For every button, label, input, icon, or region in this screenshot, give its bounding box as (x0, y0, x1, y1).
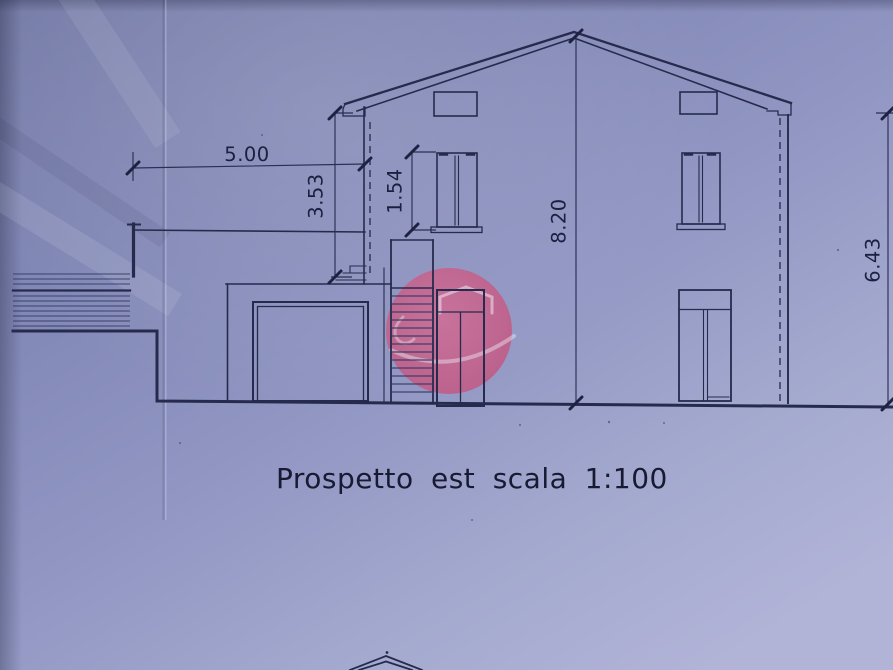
drawing-title: Prospetto est scala 1:100 (276, 462, 668, 495)
next-roof-peak-dot (386, 651, 389, 654)
dimension-label-5-00: 5.00 (224, 143, 269, 166)
paper-top-shadow (0, 0, 893, 12)
watermark-circle (386, 268, 512, 394)
paper-left-shadow (0, 0, 22, 670)
dimension-label-1-54: 1.54 (384, 168, 407, 213)
dimension-label-6-43: 6.43 (862, 237, 885, 282)
dimension-label-3-53: 3.53 (305, 173, 328, 218)
blueprint-photo: 5.00 3.53 1.54 8.20 6.43 (0, 0, 893, 670)
dimension-label-8-20: 8.20 (548, 198, 571, 243)
